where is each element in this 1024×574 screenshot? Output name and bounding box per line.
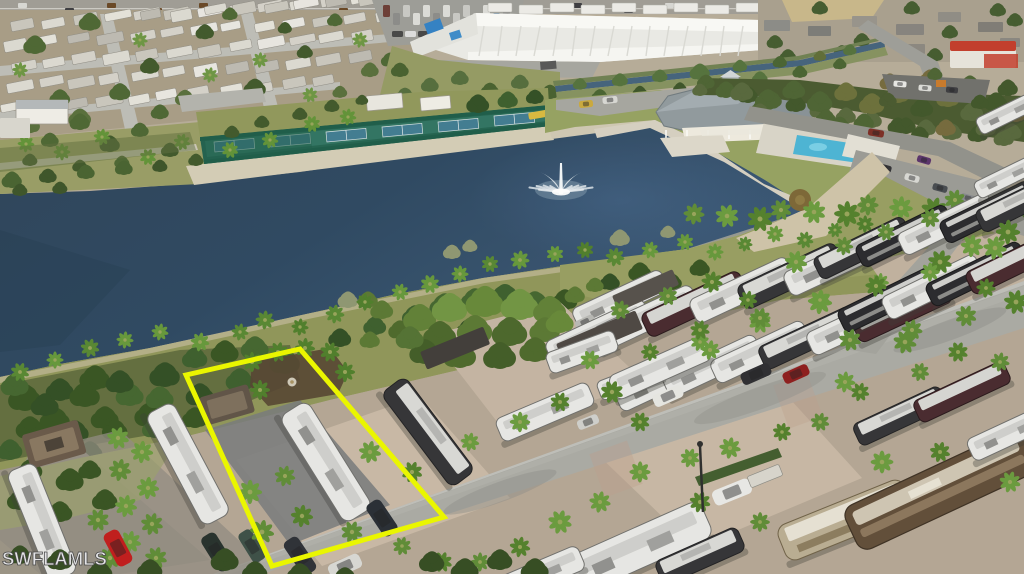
svg-text:SWFLAMLS: SWFLAMLS xyxy=(2,548,107,569)
